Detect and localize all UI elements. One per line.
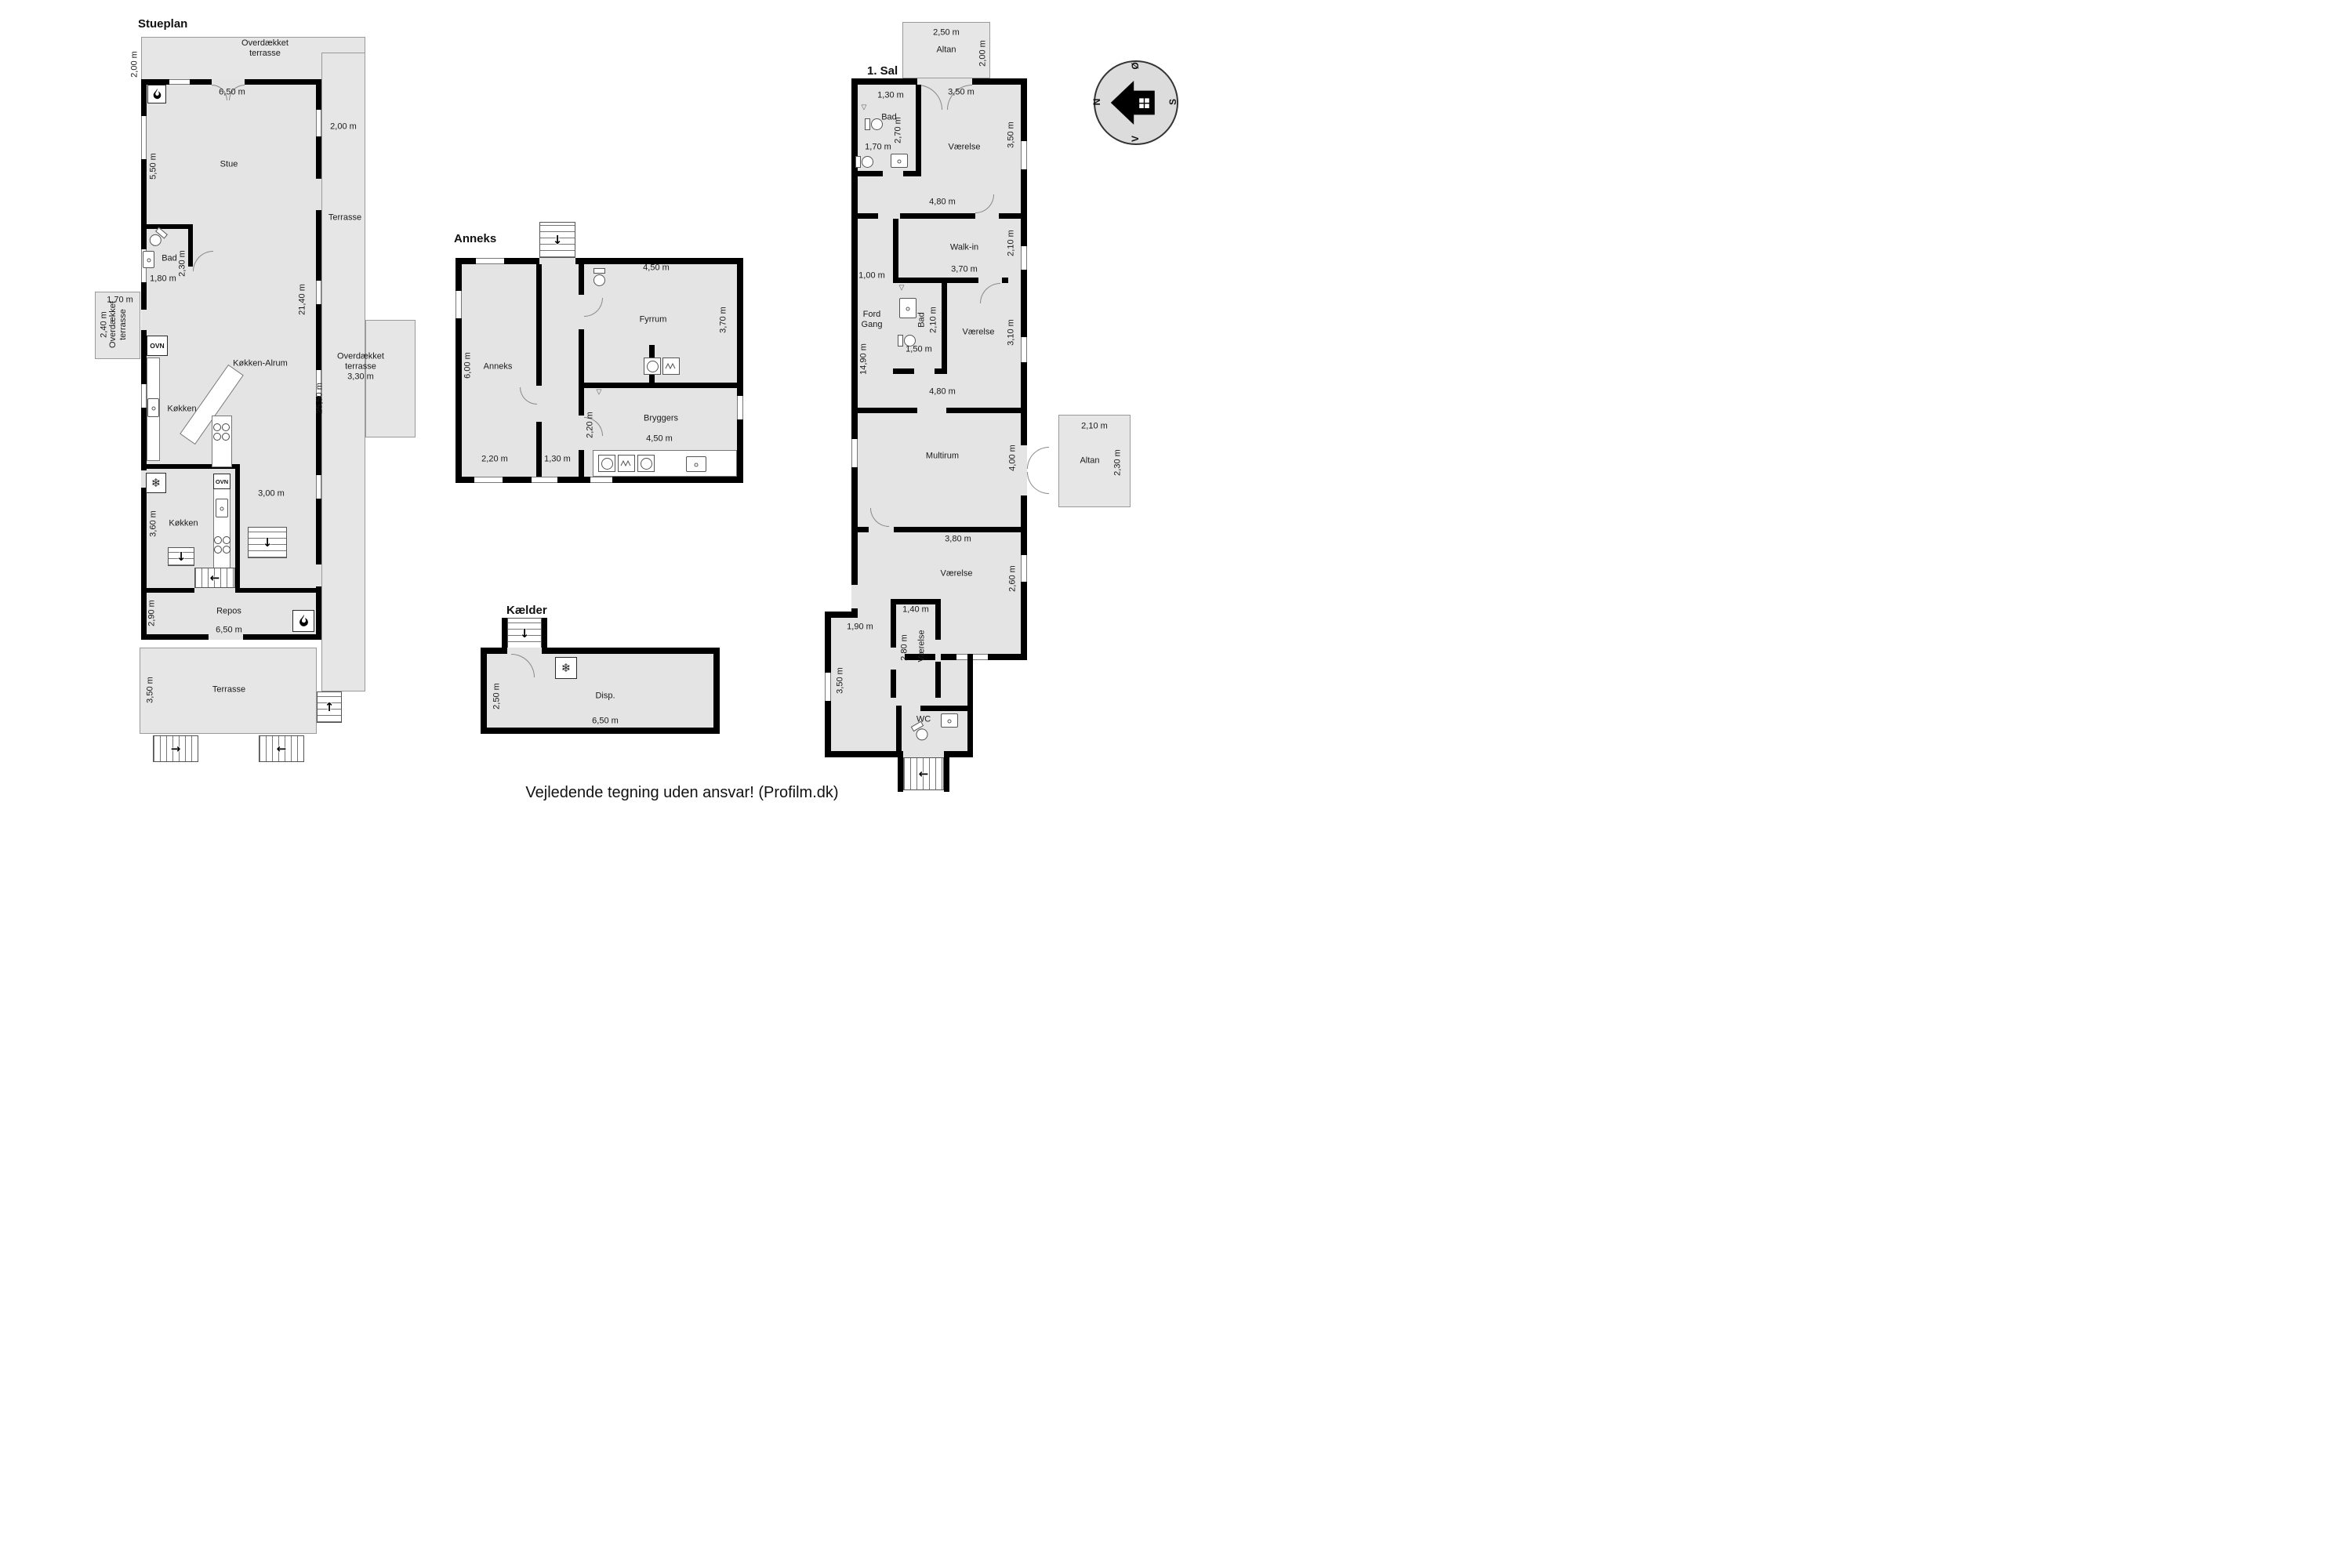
wall: [481, 648, 487, 734]
door-opening: [935, 640, 941, 662]
stairs-mid: ←: [194, 568, 235, 588]
arrow-left-icon: ←: [210, 572, 220, 584]
sink-icon: [891, 154, 908, 168]
toilet-icon: [593, 268, 605, 285]
door-opening: [141, 310, 147, 330]
wall: [584, 383, 743, 388]
door-arc: [1027, 472, 1049, 494]
covered-terrace-left: [95, 292, 140, 359]
door-opening: [212, 79, 245, 85]
arrow-up-icon: ↑: [325, 702, 335, 713]
door-opening: [579, 416, 584, 450]
oven-box: OVN: [147, 336, 168, 356]
snowflake-icon: ❄: [561, 662, 572, 674]
door-opening: [536, 386, 542, 422]
shower-icon: ▽: [862, 105, 867, 112]
wall: [737, 258, 743, 483]
window: [169, 79, 190, 85]
terrace-bottom: [140, 648, 317, 734]
door-opening: [869, 527, 894, 532]
wall: [188, 224, 193, 267]
arrow-down-icon: ↓: [520, 628, 530, 640]
wall: [967, 654, 973, 757]
door-opening: [902, 706, 920, 711]
window: [316, 110, 321, 136]
dim-label: 2,00 m: [130, 51, 140, 78]
door-opening: [978, 278, 1002, 283]
compass-oe-label: Ø: [1130, 62, 1141, 69]
wall: [536, 264, 542, 477]
plan-title-anneks: Anneks: [454, 232, 496, 245]
door-arc: [1027, 447, 1049, 469]
wall: [141, 224, 193, 229]
arrow-left-icon: ←: [277, 743, 287, 755]
altan-right: [1058, 415, 1131, 507]
window: [1021, 141, 1027, 169]
wall: [893, 219, 898, 278]
stairs-to-first-floor: ↓: [248, 527, 287, 558]
compass-s-label: S: [1167, 99, 1178, 105]
kitchen-sink-icon: [147, 398, 159, 417]
arrow-left-icon: ←: [919, 768, 929, 780]
washing-machine-icon: [637, 455, 655, 472]
stairs-to-basement: ↓: [168, 547, 194, 566]
laundry-basket-icon: [618, 455, 635, 472]
wall: [896, 706, 902, 751]
window: [456, 291, 462, 318]
door-opening: [878, 213, 900, 219]
window: [590, 477, 612, 483]
terrace-stairs-left: →: [153, 735, 198, 762]
window: [1021, 555, 1027, 582]
sink-icon: [143, 251, 154, 268]
window: [476, 258, 504, 264]
door-opening: [975, 213, 999, 219]
window: [141, 116, 147, 159]
wall: [235, 464, 240, 590]
anneks-floor: [456, 258, 743, 483]
altan-top: [902, 22, 990, 78]
wall: [502, 618, 507, 649]
terrace-stairs-side: ↑: [317, 691, 342, 723]
door-opening: [914, 368, 935, 374]
washing-machine-icon: [598, 455, 615, 472]
sink-icon: [216, 499, 228, 517]
door-opening: [883, 171, 903, 176]
window: [737, 396, 743, 419]
wall: [825, 751, 903, 757]
floorplan-page: Stueplan: [0, 0, 1211, 808]
washing-machine-icon: [644, 358, 661, 375]
door-opening: [579, 295, 584, 329]
plan-title-kaelder: Kælder: [506, 604, 547, 617]
sink-icon: [686, 456, 706, 472]
sink-icon: [899, 298, 916, 318]
terrace-strip-right: [321, 53, 365, 691]
snowflake-icon: ❄: [151, 477, 162, 489]
door-opening: [891, 648, 896, 670]
disclaimer-caption: Vejledende tegning uden ansvar! (Profilm…: [153, 784, 1211, 802]
window: [532, 477, 557, 483]
toilet-icon: [898, 335, 914, 347]
compass-v-label: V: [1130, 136, 1141, 142]
door-opening: [209, 634, 243, 640]
oven-label: OVN: [150, 342, 164, 350]
covered-terrace-right-bump: [365, 320, 416, 437]
wall: [481, 728, 720, 734]
drain-icon: ▽: [597, 390, 602, 397]
freezer-box: ❄: [555, 657, 577, 679]
wall: [713, 648, 720, 734]
stove-burners-icon: [214, 536, 230, 554]
laundry-basket-icon: [662, 358, 680, 375]
arrow-down-icon: ↓: [553, 234, 563, 246]
wall: [916, 85, 921, 176]
door-opening: [851, 585, 858, 608]
wall: [316, 79, 321, 640]
door-opening: [1021, 445, 1027, 495]
window: [1021, 337, 1027, 362]
window: [851, 439, 858, 467]
door-opening: [507, 648, 542, 654]
toilet-icon: [855, 156, 872, 168]
oven-box-2: OVN: [213, 474, 230, 489]
wall: [141, 79, 147, 640]
door-opening: [539, 258, 575, 264]
window: [141, 384, 147, 408]
door-opening: [917, 78, 972, 85]
anneks-plan: Anneks ↓ ▽ 4,50 m: [451, 220, 780, 502]
window: [825, 673, 831, 701]
arrow-down-icon: ↓: [263, 537, 273, 549]
toilet-icon: [865, 118, 881, 130]
wall: [542, 618, 547, 649]
window: [316, 370, 321, 397]
window: [316, 281, 321, 304]
door-opening: [917, 408, 946, 413]
fireplace-box: [147, 85, 166, 103]
plan-title-stueplan: Stueplan: [138, 17, 187, 31]
anneks-entry-stairs: ↓: [539, 222, 575, 258]
fireplace-icon: [151, 88, 164, 101]
sink-icon: [941, 713, 958, 728]
window: [474, 477, 503, 483]
terrace-stairs-right: ←: [259, 735, 304, 762]
wall: [942, 283, 947, 374]
stove-burners-icon: [213, 423, 229, 441]
compass-house-icon: [1106, 75, 1166, 130]
fireplace-box: [292, 610, 314, 632]
window: [1021, 246, 1027, 270]
arrow-down-icon: ↓: [176, 551, 187, 563]
compass-n-label: N: [1091, 99, 1102, 106]
shower-icon: ▽: [899, 285, 905, 292]
wall: [141, 588, 194, 593]
kaelder-plan: Kælder ↓ ❄ 2,50 m Disp. 6,50 m: [478, 596, 760, 784]
plan-title-sal: 1. Sal: [867, 64, 898, 78]
basement-stairs: ↓: [507, 618, 542, 649]
oven-label-2: OVN: [216, 478, 228, 485]
fireplace-icon: [296, 614, 311, 629]
door-opening: [316, 179, 321, 210]
wall: [235, 588, 321, 593]
door-opening: [316, 564, 321, 586]
window: [316, 475, 321, 499]
arrow-right-icon: →: [171, 743, 181, 755]
stueplan-plan: Stueplan: [94, 16, 431, 792]
compass-rose: N Ø S V: [1094, 60, 1180, 147]
freezer-box: ❄: [146, 473, 166, 493]
wall: [891, 599, 941, 604]
